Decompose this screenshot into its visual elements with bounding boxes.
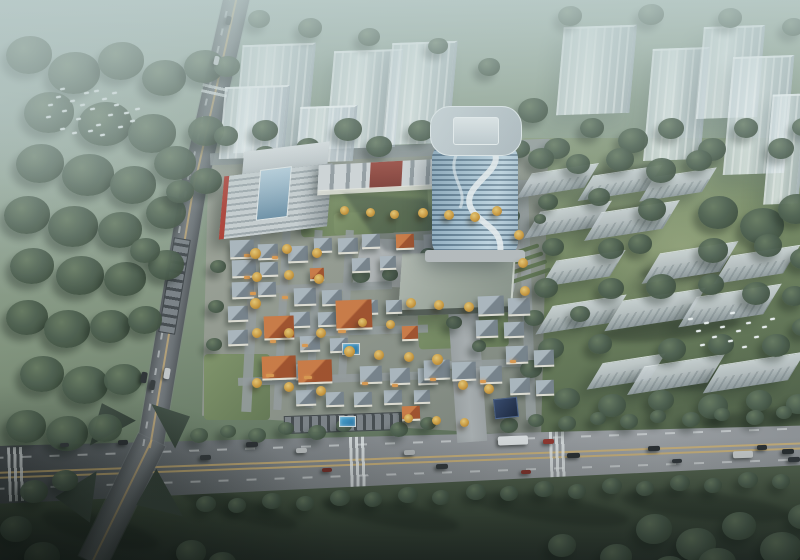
car <box>436 464 448 469</box>
bird <box>94 90 99 93</box>
forest-tree <box>44 310 90 348</box>
context-tree <box>558 6 582 26</box>
commercial-glass-atrium <box>256 166 292 221</box>
gold-tree <box>390 210 399 219</box>
gold-tree <box>432 416 441 425</box>
boulevard-tree <box>20 480 48 503</box>
lit-awning <box>270 340 276 343</box>
context-tree <box>658 338 686 361</box>
boulevard-tree <box>650 410 666 423</box>
site-tree <box>210 260 226 273</box>
villa-slate-roof <box>536 380 555 397</box>
car <box>788 457 800 462</box>
context-tree <box>298 18 322 38</box>
site-tree <box>206 338 222 351</box>
lit-awning <box>302 344 308 347</box>
boulevard-tree <box>390 422 408 437</box>
gold-tree <box>432 354 443 365</box>
car <box>498 435 528 445</box>
lit-awning <box>304 376 312 379</box>
forest-tree <box>20 356 64 392</box>
boulevard-tree <box>228 498 246 513</box>
gold-tree <box>484 384 494 394</box>
forest-tree <box>62 154 114 196</box>
boulevard-tree <box>398 487 418 503</box>
site-tree <box>208 300 224 313</box>
bird <box>60 128 65 131</box>
gold-tree <box>358 318 367 327</box>
gold-tree <box>284 328 294 338</box>
villa-slate-roof <box>384 390 403 406</box>
forest-tree <box>190 168 222 194</box>
car <box>246 442 258 447</box>
gold-tree <box>340 206 349 215</box>
lit-awning <box>430 378 436 381</box>
villa-slate-roof <box>260 262 279 278</box>
gold-tree <box>520 286 530 296</box>
crosswalk <box>549 427 567 482</box>
context-tree <box>528 148 554 169</box>
lit-awning <box>272 256 278 259</box>
bird <box>112 92 117 95</box>
forest-tree <box>16 144 64 183</box>
forest-tree <box>62 366 108 404</box>
gold-tree <box>464 302 474 312</box>
gold-tree <box>316 328 326 338</box>
lit-awning <box>392 384 398 387</box>
gold-tree <box>404 352 414 362</box>
context-tree <box>554 388 580 409</box>
forest-tree <box>128 306 162 334</box>
context-tree <box>358 28 380 46</box>
gold-tree <box>434 300 444 310</box>
entrance-pavilion <box>493 397 519 419</box>
context-tree <box>598 278 624 299</box>
context-tree <box>606 148 634 171</box>
tower-roof <box>430 106 522 156</box>
context-tree <box>686 150 712 171</box>
gold-tree <box>404 414 413 423</box>
lit-awning <box>266 374 274 377</box>
gold-tree <box>252 272 262 282</box>
boulevard-tree <box>278 422 294 435</box>
villa-slate-roof <box>258 282 277 298</box>
villa-terracotta-roof <box>396 234 415 251</box>
gold-tree <box>284 382 294 392</box>
forest-tree <box>154 146 196 180</box>
context-tree <box>646 158 676 183</box>
bird <box>84 92 89 95</box>
gold-tree <box>316 386 326 396</box>
context-tree <box>648 390 674 411</box>
boulevard-tree <box>636 481 654 496</box>
lit-awning <box>244 276 250 279</box>
context-tree <box>658 118 684 139</box>
villa-slate-roof <box>390 368 411 386</box>
forest-tree <box>214 126 238 146</box>
lit-awning <box>480 380 486 383</box>
context-tree <box>366 136 392 157</box>
forest-tree <box>90 310 130 343</box>
villa-slate-roof <box>326 392 345 408</box>
villa-slate-roof <box>354 392 373 408</box>
boulevard-tree <box>52 470 78 491</box>
glass-office-tower <box>430 106 520 256</box>
boulevard-tree <box>738 472 758 488</box>
villa-terracotta-roof <box>402 326 419 342</box>
bird <box>72 132 77 135</box>
boulevard-tree <box>746 410 764 425</box>
context-tree <box>598 238 624 259</box>
context-tree <box>782 286 800 306</box>
bird <box>135 108 140 111</box>
context-tree <box>638 4 664 25</box>
boulevard-tree <box>776 406 792 419</box>
villa-slate-roof <box>534 350 555 368</box>
aerial-rendering-canvas <box>0 0 800 560</box>
boulevard-tree <box>602 478 622 494</box>
car <box>567 453 580 458</box>
boulevard-tree <box>220 425 236 438</box>
facade-ribbon <box>432 144 518 256</box>
forest-tree <box>48 206 98 247</box>
site-tree <box>534 214 546 224</box>
gold-tree <box>344 346 355 357</box>
villa-slate-roof <box>476 320 499 339</box>
gold-tree <box>470 212 480 222</box>
car <box>782 449 794 454</box>
villa-slate-roof <box>352 258 371 274</box>
context-tree <box>746 390 772 411</box>
villa-slate-roof <box>478 296 505 317</box>
villa-slate-roof <box>228 330 249 347</box>
gold-tree <box>374 350 384 360</box>
context-tree <box>588 188 610 206</box>
context-tree <box>478 58 500 76</box>
villa-slate-roof <box>414 390 430 405</box>
swimming-pool <box>339 416 356 427</box>
gold-tree <box>460 418 469 427</box>
context-tree <box>754 234 782 257</box>
gold-tree <box>314 274 324 284</box>
context-tree <box>534 278 558 298</box>
boulevard-tree <box>176 540 206 560</box>
villa-slate-roof <box>296 390 317 407</box>
forest-tree <box>98 42 144 80</box>
boulevard-tree <box>308 425 326 440</box>
boulevard-tree <box>590 412 606 425</box>
forest-tree <box>10 248 54 284</box>
context-tree <box>566 154 590 174</box>
villa-terracotta-roof <box>335 299 372 330</box>
villa-slate-roof <box>294 288 317 307</box>
context-tree <box>518 98 548 123</box>
boulevard-tree <box>558 416 576 431</box>
lit-awning <box>338 330 346 333</box>
context-tree <box>742 282 770 305</box>
context-tree <box>252 120 278 141</box>
villa-slate-roof <box>232 282 255 300</box>
gold-tree <box>444 210 454 220</box>
site-tree <box>446 316 462 329</box>
forest-tree <box>110 166 156 204</box>
gold-tree <box>282 244 292 254</box>
context-tree <box>762 334 790 357</box>
gold-tree <box>386 320 395 329</box>
gold-tree <box>252 378 262 388</box>
boulevard-tree <box>432 490 450 505</box>
gold-tree <box>492 206 502 216</box>
villa-slate-roof <box>338 238 359 255</box>
red-roof-block <box>369 161 402 189</box>
context-tree <box>734 118 758 138</box>
forest-tree <box>56 256 104 295</box>
lit-awning <box>510 360 516 363</box>
boulevard-tree <box>248 428 266 443</box>
car <box>521 470 531 474</box>
villa-slate-roof <box>318 312 337 328</box>
forest-tree <box>6 410 46 443</box>
boulevard-tree <box>528 414 544 427</box>
car <box>60 443 69 447</box>
bird <box>102 98 107 101</box>
context-tree <box>334 118 362 141</box>
context-tree <box>428 38 448 54</box>
villa-slate-roof <box>362 234 381 250</box>
context-tree <box>782 18 800 36</box>
context-tree <box>768 138 794 159</box>
boulevard-tree <box>600 544 632 560</box>
boulevard-tree <box>670 475 690 491</box>
car <box>118 440 128 445</box>
boulevard-tree <box>196 496 216 512</box>
forest-tree <box>48 52 100 94</box>
boulevard-tree <box>760 532 800 560</box>
lit-awning <box>362 382 368 385</box>
tower-entrance-canopy <box>425 250 525 262</box>
forest-tree <box>166 180 194 203</box>
context-tree <box>718 8 742 28</box>
car <box>733 451 753 459</box>
context-tree <box>580 118 604 138</box>
context-tree <box>638 198 666 221</box>
car <box>200 455 211 460</box>
gold-tree <box>518 258 528 268</box>
context-tree <box>570 306 590 322</box>
forest-tree <box>88 414 122 442</box>
gold-tree <box>514 230 524 240</box>
context-tree <box>698 274 724 295</box>
lit-awning <box>250 292 256 295</box>
forest-tree <box>78 102 132 146</box>
villa-slate-roof <box>228 306 249 323</box>
villa-slate-roof <box>452 362 477 382</box>
gold-tree <box>312 248 322 258</box>
boulevard-tree <box>500 418 518 433</box>
car <box>322 468 332 472</box>
boulevard-tree <box>722 512 756 540</box>
car <box>648 446 660 451</box>
boulevard-tree <box>548 534 576 557</box>
boulevard-tree <box>466 484 486 500</box>
tower-skylight <box>453 117 499 145</box>
car <box>543 439 554 444</box>
gold-tree <box>418 208 428 218</box>
villa-slate-roof <box>380 256 396 271</box>
forest-tree <box>4 196 50 234</box>
context-tree <box>646 274 676 299</box>
context-tree <box>628 234 652 254</box>
boulevard-tree <box>714 408 730 421</box>
boulevard-tree <box>0 516 32 542</box>
forest-tree <box>6 36 52 74</box>
boulevard-tree <box>704 478 722 493</box>
car <box>672 459 682 463</box>
boulevard-tree <box>568 484 586 499</box>
boulevard-tree <box>682 412 700 427</box>
boulevard-tree <box>330 490 350 506</box>
context-tree <box>588 334 612 354</box>
boulevard-tree <box>636 514 672 544</box>
boulevard-tree <box>190 428 208 443</box>
gold-tree <box>252 328 262 338</box>
context-tree <box>698 238 728 263</box>
villa-slate-roof <box>504 322 525 339</box>
boulevard-tree <box>620 414 638 429</box>
context-tree <box>248 10 270 28</box>
boulevard-tree <box>262 493 282 509</box>
forest-tree <box>104 364 142 395</box>
crosswalk <box>349 434 367 489</box>
bird <box>70 100 75 103</box>
gold-tree <box>366 208 375 217</box>
forest-tree <box>142 60 186 96</box>
boulevard-tree <box>534 481 554 497</box>
ghost-context-tower <box>556 25 637 115</box>
villa-slate-roof <box>510 378 531 396</box>
context-tree <box>698 196 738 229</box>
villa-slate-roof <box>508 298 531 317</box>
boulevard-tree <box>364 492 382 507</box>
forest-tree <box>104 262 146 296</box>
car <box>757 445 767 450</box>
forest-tree <box>130 238 160 263</box>
lit-awning <box>282 296 288 299</box>
gold-tree <box>458 380 468 390</box>
forest-tree <box>24 92 74 133</box>
gold-tree <box>250 298 261 309</box>
forest-tree <box>6 300 48 335</box>
context-tree <box>538 194 558 210</box>
site-lawn <box>204 354 270 420</box>
car <box>296 448 307 453</box>
gold-tree <box>406 298 416 308</box>
boulevard-tree <box>296 496 314 511</box>
boulevard-tree <box>500 486 518 501</box>
villa-terracotta-roof <box>298 359 333 384</box>
car <box>404 450 415 455</box>
boulevard-tree <box>772 474 790 489</box>
site-tree <box>472 340 486 352</box>
villa-slate-roof <box>386 300 402 315</box>
gold-tree <box>284 270 294 280</box>
townhouse-row <box>317 159 442 192</box>
context-tree <box>542 238 564 256</box>
bird <box>80 104 85 107</box>
gold-tree <box>250 248 261 259</box>
